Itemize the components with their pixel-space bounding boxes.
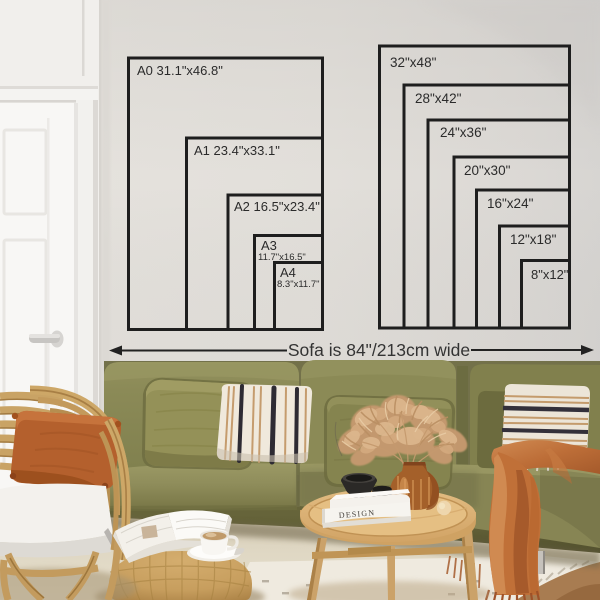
svg-text:A0 31.1"x46.8": A0 31.1"x46.8" <box>137 63 223 78</box>
svg-text:A3: A3 <box>261 238 277 253</box>
svg-text:Sofa is 84"/213cm wide: Sofa is 84"/213cm wide <box>288 340 470 360</box>
svg-text:32"x48": 32"x48" <box>390 55 437 70</box>
svg-text:12"x18": 12"x18" <box>510 232 557 247</box>
svg-text:8"x12": 8"x12" <box>531 267 569 282</box>
svg-text:16"x24": 16"x24" <box>487 196 534 211</box>
svg-text:20"x30": 20"x30" <box>464 163 511 178</box>
svg-text:11.7"x16.5": 11.7"x16.5" <box>258 252 306 263</box>
svg-text:28"x42": 28"x42" <box>415 91 462 106</box>
svg-text:8.3"x11.7": 8.3"x11.7" <box>277 279 320 290</box>
svg-text:24"x36": 24"x36" <box>440 125 487 140</box>
svg-text:A2 16.5"x23.4": A2 16.5"x23.4" <box>234 199 320 214</box>
svg-text:A1 23.4"x33.1": A1 23.4"x33.1" <box>194 143 280 158</box>
svg-text:A4: A4 <box>280 265 296 280</box>
